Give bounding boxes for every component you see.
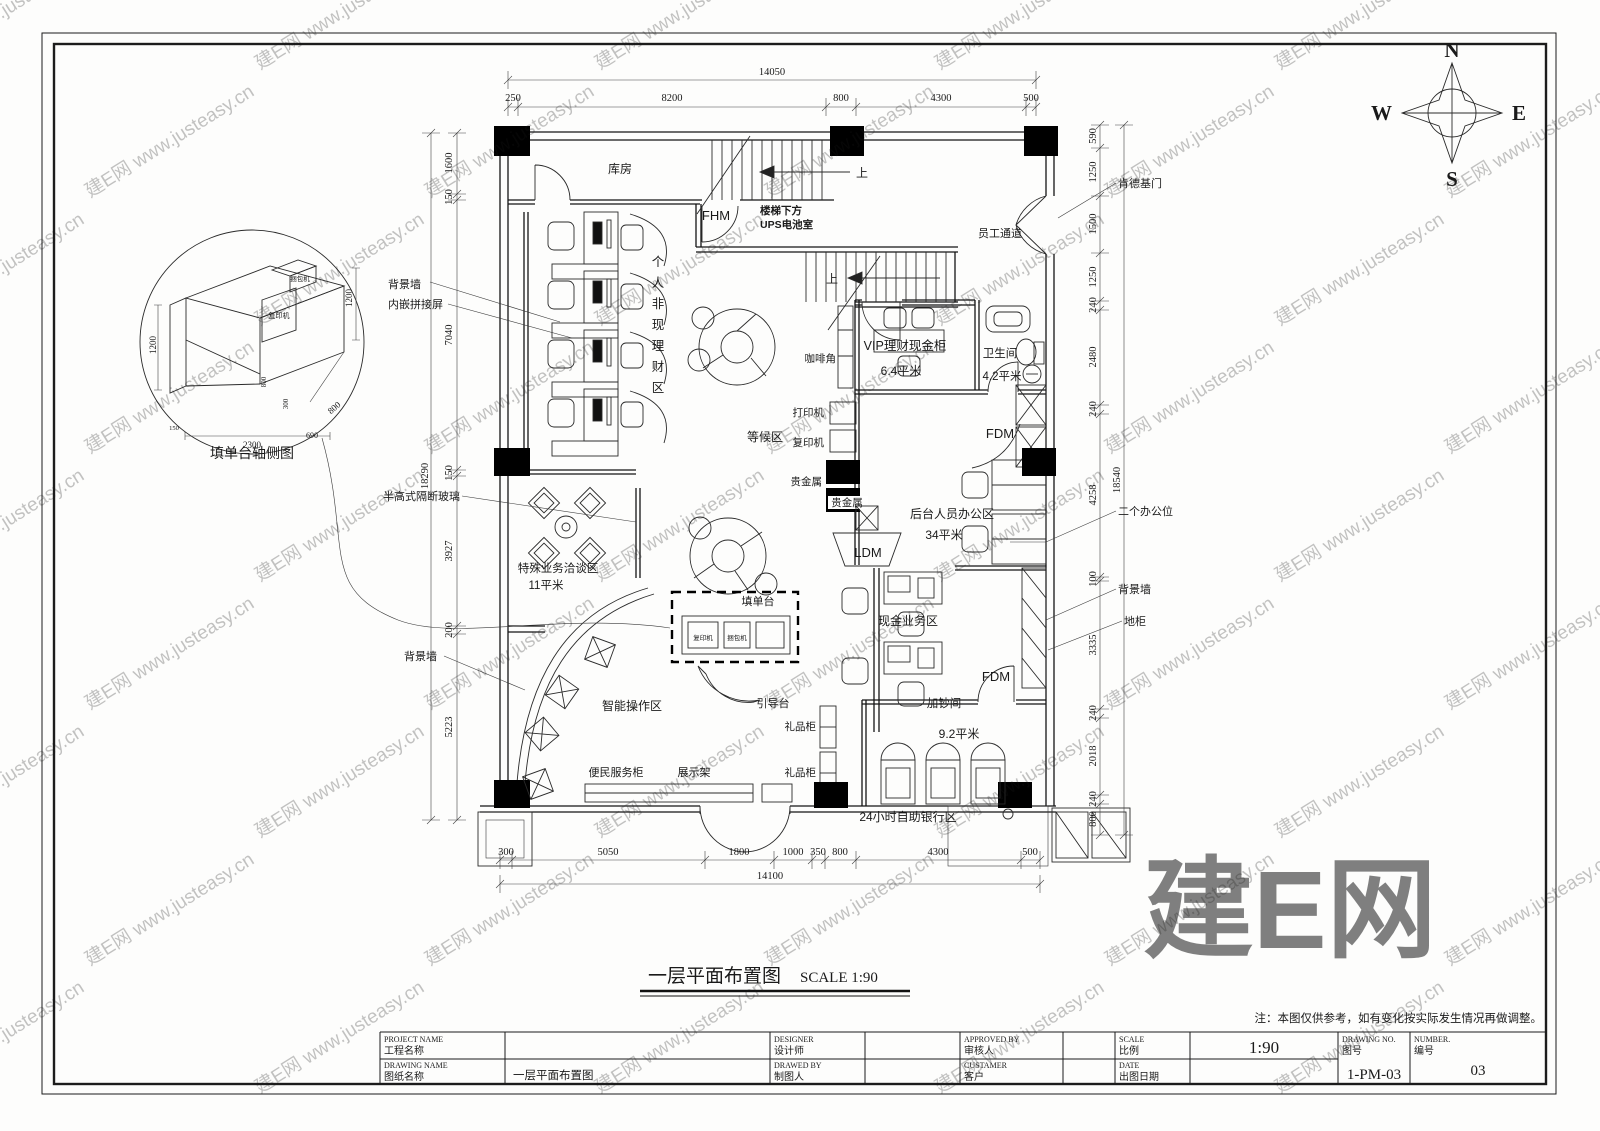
ups-room-line1-label: 楼梯下方 [760,204,802,217]
tb-drawingname-zh: 图纸名称 [384,1070,424,1083]
dim-bottom-seg-6: 4300 [928,847,949,858]
dim-bottom-seg-2: 1800 [729,847,750,858]
dim-left-seg-4: 3927 [444,541,455,562]
dim-right-seg-9: 3335 [1088,635,1099,656]
ups-room-line2-label: UPS电池室 [760,218,814,231]
dimension-chain [504,98,1040,116]
tb-approved-en: APPROVED BY [964,1035,1020,1044]
dim-left-seg-6: 5223 [444,717,455,738]
waiting-sofa-1 [688,307,775,385]
dim-right-seg-13: 800 [1088,811,1099,827]
precious-metal-1-label: 贵金属 [791,475,823,488]
watermark-text: 建E网 www.justeasy.cn [931,976,1108,1098]
tb-number-en: NUMBER. [1414,1035,1450,1044]
detail-dim-1: 1200 [344,289,354,308]
detail-machine-top-label: 捆包机 [290,274,310,283]
tb-date-zh: 出图日期 [1119,1070,1159,1083]
dim-right-seg-5: 2480 [1088,347,1099,368]
tb-drawingname-value: 一层平面布置图 [513,1069,594,1082]
watermark-text: 建E网 www.justeasy.cn [931,0,1108,74]
special-table [528,487,605,568]
floor-cabinet-shape [1022,568,1046,688]
backoffice-area-label: 34平米 [925,528,962,542]
compass: N S E W [1371,38,1526,191]
form-desk-label: 填单台 [742,594,775,608]
floor-cabinet-label: 地柜 [1124,615,1146,628]
tb-number-zh: 编号 [1414,1044,1434,1057]
convenience-cabinet-label: 便民服务柜 [589,766,644,779]
detail-machine-front-label: 复印机 [269,311,290,320]
dim-top-seg-3: 4300 [931,93,952,104]
column [830,126,864,156]
stairs-up-1-label: 上 [856,166,868,180]
tb-drawingno-value: 1-PM-03 [1347,1067,1401,1083]
watermark-text: 建E网 www.justeasy.cn [421,848,598,970]
dim-top-seg-0: 250 [505,93,521,104]
column [494,126,530,156]
dim-top-overall: 14050 [759,67,785,78]
watermark-text: 建E网 www.justeasy.cn [591,0,768,74]
detail-dim-4: 800 [260,376,268,387]
fdm-upper-label: FDM [986,426,1014,441]
watermark-text: 建E网 www.justeasy.cn [0,208,88,330]
bg-wall-left-1-label: 背景墙 [388,277,421,291]
compass-e: E [1512,101,1526,125]
dim-top-seg-2: 800 [833,93,849,104]
generated-geometry [422,71,1133,893]
detail-dim-5: 690 [306,431,318,440]
compass-n: N [1444,38,1459,62]
staff-corridor-label: 员工通道 [978,226,1022,240]
dim-left-seg-2: 7040 [444,325,455,346]
waiting-zone-label: 等候区 [747,430,783,444]
watermark-text: 建E网 www.justeasy.cn [761,848,938,970]
dim-top-seg-4: 500 [1023,93,1039,104]
watermark-text: 建E网 www.justeasy.cn [1101,336,1278,458]
watermark-text: 建E网 www.justeasy.cn [251,720,428,842]
bg-wall-right-label: 背景墙 [1118,582,1151,596]
watermark-text: 建E网 www.justeasy.cn [761,592,938,714]
dim-right-seg-1: 1250 [1088,162,1099,183]
watermark-text: 建E网 www.justeasy.cn [81,848,258,970]
gift-cabinet-2-label: 礼品柜 [785,766,817,779]
form-desk-bundler-label: 捆包机 [727,633,747,642]
watermark-text: 建E网 www.justeasy.cn [81,80,258,202]
tb-scale-en: SCALE [1119,1035,1144,1044]
column [494,448,530,476]
form-desk-copier-label: 复印机 [693,633,713,642]
tb-approved-zh: 审核人 [964,1044,994,1057]
dim-bottom-seg-7: 500 [1022,847,1038,858]
dim-bottom-overall: 14100 [757,871,783,882]
watermark-text: 建E网 www.justeasy.cn [421,592,598,714]
copier-shape [830,430,856,452]
inlay-screen-label: 内嵌拼接屏 [388,297,443,311]
smart-kiosk [585,637,616,668]
annotations: 1405025082008004300500141003005050180010… [148,67,1173,882]
watermark-big: 建E网 [1143,849,1436,972]
detail-dim-7: 150 [169,425,179,432]
special-business-area-label: 11平米 [529,579,564,592]
dim-right-seg-4: 240 [1088,297,1099,313]
tb-designer-en: DESIGNER [774,1035,814,1044]
dim-bottom-seg-0: 300 [498,847,514,858]
smart-zone-label: 智能操作区 [602,698,662,713]
watermark-text: 建E网 www.justeasy.cn [1441,336,1600,458]
atm-24h-zone-label: 24小时自助银行区 [859,810,956,824]
tb-drawedby-en: DRAWED BY [774,1061,822,1070]
dim-bottom-seg-1: 5050 [598,847,619,858]
detail-dim-3: 300 [282,398,290,409]
printer-shape [830,402,856,424]
dim-right-seg-7: 4258 [1088,485,1099,506]
dim-left-seg-0: 1600 [444,153,455,174]
watermark-text: 建E网 www.justeasy.cn [81,336,258,458]
precious-metal-2-label: 贵金属 [831,496,863,509]
dim-left-seg-3: 150 [444,465,455,481]
detail-dim-6: 2300 [243,440,262,450]
dim-right-seg-10: 240 [1088,705,1099,721]
watermark-text: 建E网 www.justeasy.cn [1271,0,1448,74]
drawing-title-group: 一层平面布置图 SCALE 1:90 [640,965,910,996]
tb-number-value: 03 [1471,1063,1486,1079]
ldm-machine-label: LDM [854,545,881,560]
tb-drawedby-zh: 制图人 [774,1070,804,1083]
watermark-text: 建E网 www.justeasy.cn [1441,592,1600,714]
personal-finance-zone-label: 个人非现理财区 [652,255,665,395]
copier-label: 复印机 [793,436,825,449]
dim-right-seg-11: 2018 [1088,746,1099,767]
tb-drawingno-zh: 图号 [1342,1045,1362,1057]
watermark-text: 建E网 www.justeasy.cn [761,336,938,458]
column [1024,126,1058,156]
dim-right-seg-12: 240 [1088,791,1099,807]
half-glass-partition-label: 半高式隔断玻璃 [383,489,460,503]
form-desk-group [672,592,798,662]
atm-machine [881,743,915,804]
title-block: PROJECT NAME DRAWING NAME DESIGNER DRAWE… [380,1032,1546,1084]
dim-right-seg-8: 100 [1088,571,1099,587]
dim-left-seg-5: 200 [444,622,455,638]
watermark-text: 建E网 www.justeasy.cn [0,464,88,586]
waiting-sofa-2 [689,517,777,595]
watermark-text: 建E网 www.justeasy.cn [931,208,1108,330]
guide-desk-label: 引导台 [757,696,790,710]
display-rack-shape [762,784,792,802]
cash-business-zone-label: 现金业务区 [878,613,938,628]
compass-s: S [1446,167,1458,191]
fhm-door-label: FHM [702,208,730,223]
watermark-text: 建E网 www.justeasy.cn [0,0,88,74]
watermark-layer: 建E网 www.justeasy.cn建E网 www.justeasy.cn建E… [0,0,1600,1098]
detail-dim-2: 800 [326,399,343,416]
watermark-text: 建E网 www.justeasy.cn [251,208,428,330]
dim-right-seg-2: 1500 [1088,214,1099,235]
dim-top-seg-1: 8200 [662,93,683,104]
two-workstations-label: 二个办公位 [1118,504,1173,518]
cash-add-room-label: 加钞间 [927,696,962,710]
watermark-text: 建E网 www.justeasy.cn [251,0,428,74]
cash-add-area-label: 9.2平米 [939,727,980,741]
precious-metal-cabinet-1 [826,460,860,484]
vestibule [948,806,1130,866]
tb-customer-en: CUSTAMER [964,1061,1008,1070]
watermark-text: 建E网 www.justeasy.cn [1441,848,1600,970]
sheet-note: 注：本图仅供参考，如有变化按实际发生情况再做调整。 [1255,1011,1543,1025]
drawing-title: 一层平面布置图 [648,965,781,987]
main-entrance-doors [700,806,790,852]
tb-drawingname-en: DRAWING NAME [384,1061,448,1070]
gift-cabinet-1-label: 礼品柜 [785,720,817,733]
fdm-lower-label: FDM [982,669,1010,684]
sheet-border [42,33,1556,1094]
watermark-text: 建E网 www.justeasy.cn [591,976,768,1098]
floor-plan-svg: N S E W [0,0,1600,1131]
dim-bottom-seg-3: 1000 [783,847,804,858]
watermark-text: 建E网 www.justeasy.cn [591,208,768,330]
tb-scale-value: 1:90 [1249,1038,1279,1057]
dim-right-seg-0: 590 [1088,128,1099,144]
workstation-cluster [548,212,666,279]
drawing-title-scale: SCALE 1:90 [800,970,878,986]
watermark-text: 建E网 www.justeasy.cn [81,592,258,714]
watermark-text: 建E网 www.justeasy.cn [1271,208,1448,330]
detail-dim-0: 1200 [148,336,158,355]
bg-wall-left-2-label: 背景墙 [404,649,437,663]
column [814,782,848,808]
compass-w: W [1371,101,1392,125]
toilet-area-label: 4.2平米 [983,370,1022,383]
coffee-corner-label: 咖啡角 [805,353,837,365]
atm-machine [971,743,1005,804]
stairs-up-2-label: 上 [826,272,838,286]
watermark-text: 建E网 www.justeasy.cn [1271,720,1448,842]
watermark-text: 建E网 www.justeasy.cn [931,464,1108,586]
dim-left-seg-1: 150 [444,189,455,205]
tb-project-zh: 工程名称 [384,1044,424,1057]
vip-cash-room-label: VIP理财现金柜 [864,338,947,353]
tb-project-en: PROJECT NAME [384,1035,443,1044]
tb-scale-zh: 比例 [1119,1044,1139,1057]
stairs [697,136,946,330]
dim-left-overall: 18290 [420,463,431,489]
watermark-text: 建E网 www.justeasy.cn [1101,592,1278,714]
dim-right-seg-6: 240 [1088,401,1099,417]
vip-cash-area-label: 6.4平米 [881,364,922,378]
watermark-text: 建E网 www.justeasy.cn [0,720,88,842]
staff-corridor-door [1016,196,1046,254]
watermark-text: 建E网 www.justeasy.cn [1101,848,1278,970]
column [1022,448,1056,476]
special-business-zone-label: 特殊业务洽谈区 [518,561,599,575]
coffee-cabinet [838,306,853,388]
atm-machine [926,743,960,804]
watermark-text: 建E网 www.justeasy.cn [591,464,768,586]
workstation-cluster [548,330,666,397]
tb-designer-zh: 设计师 [774,1044,804,1057]
watermark-text: 建E网 www.justeasy.cn [1271,464,1448,586]
teller-station-2 [842,642,942,706]
toilet-label: 卫生间 [983,346,1018,360]
storeroom-door [535,165,570,200]
dim-right-overall: 18540 [1112,467,1123,493]
drawing-sheet: N S E W [0,0,1600,1131]
watermark-text: 建E网 www.justeasy.cn [0,976,88,1098]
dim-right-seg-3: 1250 [1088,267,1099,288]
watermark-text: 建E网 www.justeasy.cn [591,720,768,842]
tb-customer-zh: 客户 [964,1070,984,1083]
backoffice-zone-label: 后台人员办公区 [910,506,994,521]
watermark-text: 建E网 www.justeasy.cn [251,464,428,586]
kfc-door-label: 肯德基门 [1118,176,1162,190]
dim-bottom-seg-5: 800 [832,847,848,858]
display-rack-label: 展示架 [678,766,711,779]
tb-date-en: DATE [1119,1061,1140,1070]
tb-drawingno-en: DRAWING NO. [1342,1035,1396,1044]
workstation-cluster [548,271,666,338]
guide-desk-shape [698,666,760,702]
column [494,780,530,808]
dim-bottom-seg-4: 350 [810,847,826,858]
storeroom-label: 库房 [608,161,632,176]
printer-label: 打印机 [793,406,825,419]
workstation-cluster [548,389,666,456]
